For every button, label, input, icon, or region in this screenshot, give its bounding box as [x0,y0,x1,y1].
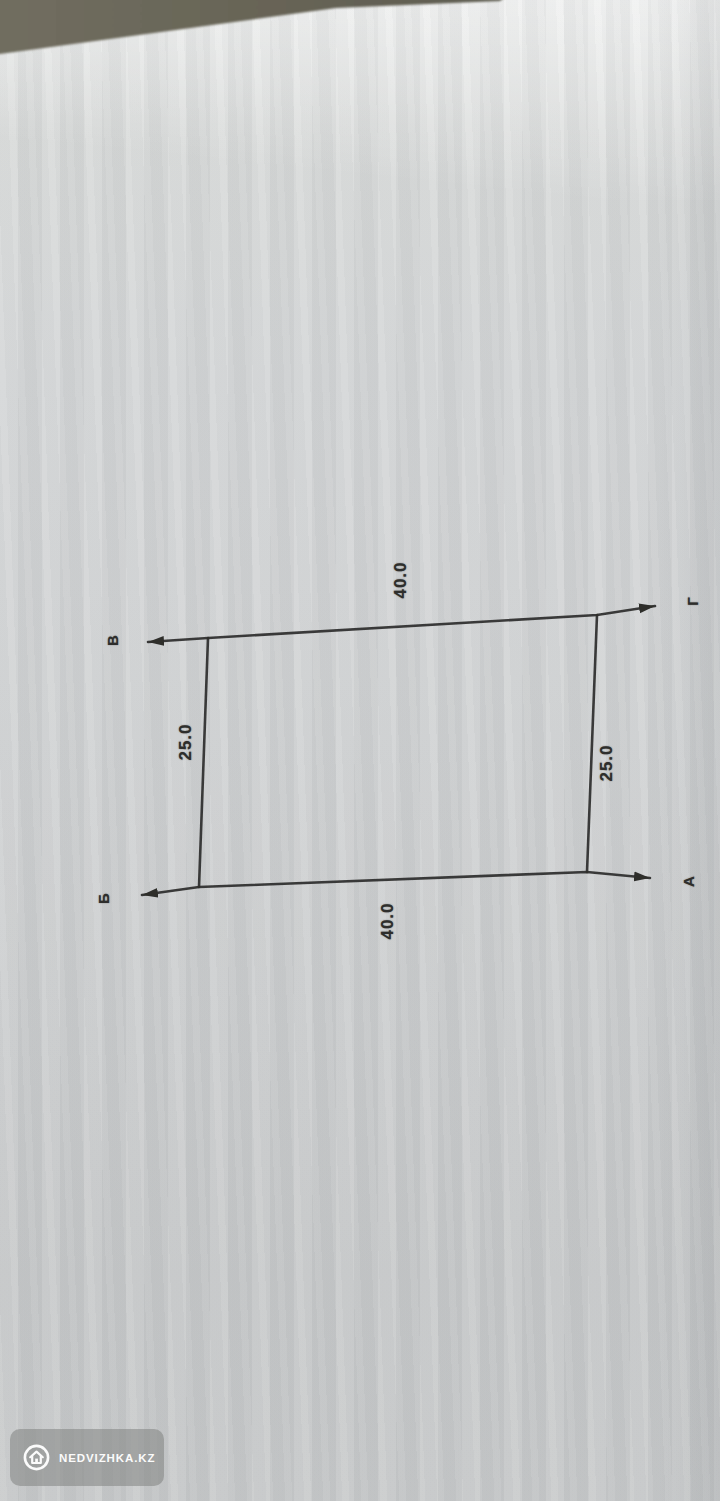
corner-label-top-left: В [104,634,121,646]
plot-side-bottom [142,872,650,895]
plot-side-top [148,606,655,642]
corner-label-bottom-right: А [680,875,697,887]
house-icon [23,1444,50,1471]
corner-label-bottom-left: Б [95,892,112,904]
dimension-label-top: 40.0 [391,561,411,598]
table-surface-background [0,0,512,54]
dimension-label-left: 25.0 [176,723,196,760]
plot-side-right [587,615,597,872]
dimension-label-bottom: 40.0 [378,902,398,939]
dimension-label-right: 25.0 [597,744,617,781]
watermark-badge: NEDVIZHKA.KZ [10,1429,164,1486]
corner-label-top-right: Г [684,596,701,606]
photographed-document: В Г А Б 40.0 40.0 25.0 25.0 NEDVIZHKA.KZ [0,0,720,1501]
plot-side-left [199,638,208,887]
watermark-label: NEDVIZHKA.KZ [59,1452,155,1464]
